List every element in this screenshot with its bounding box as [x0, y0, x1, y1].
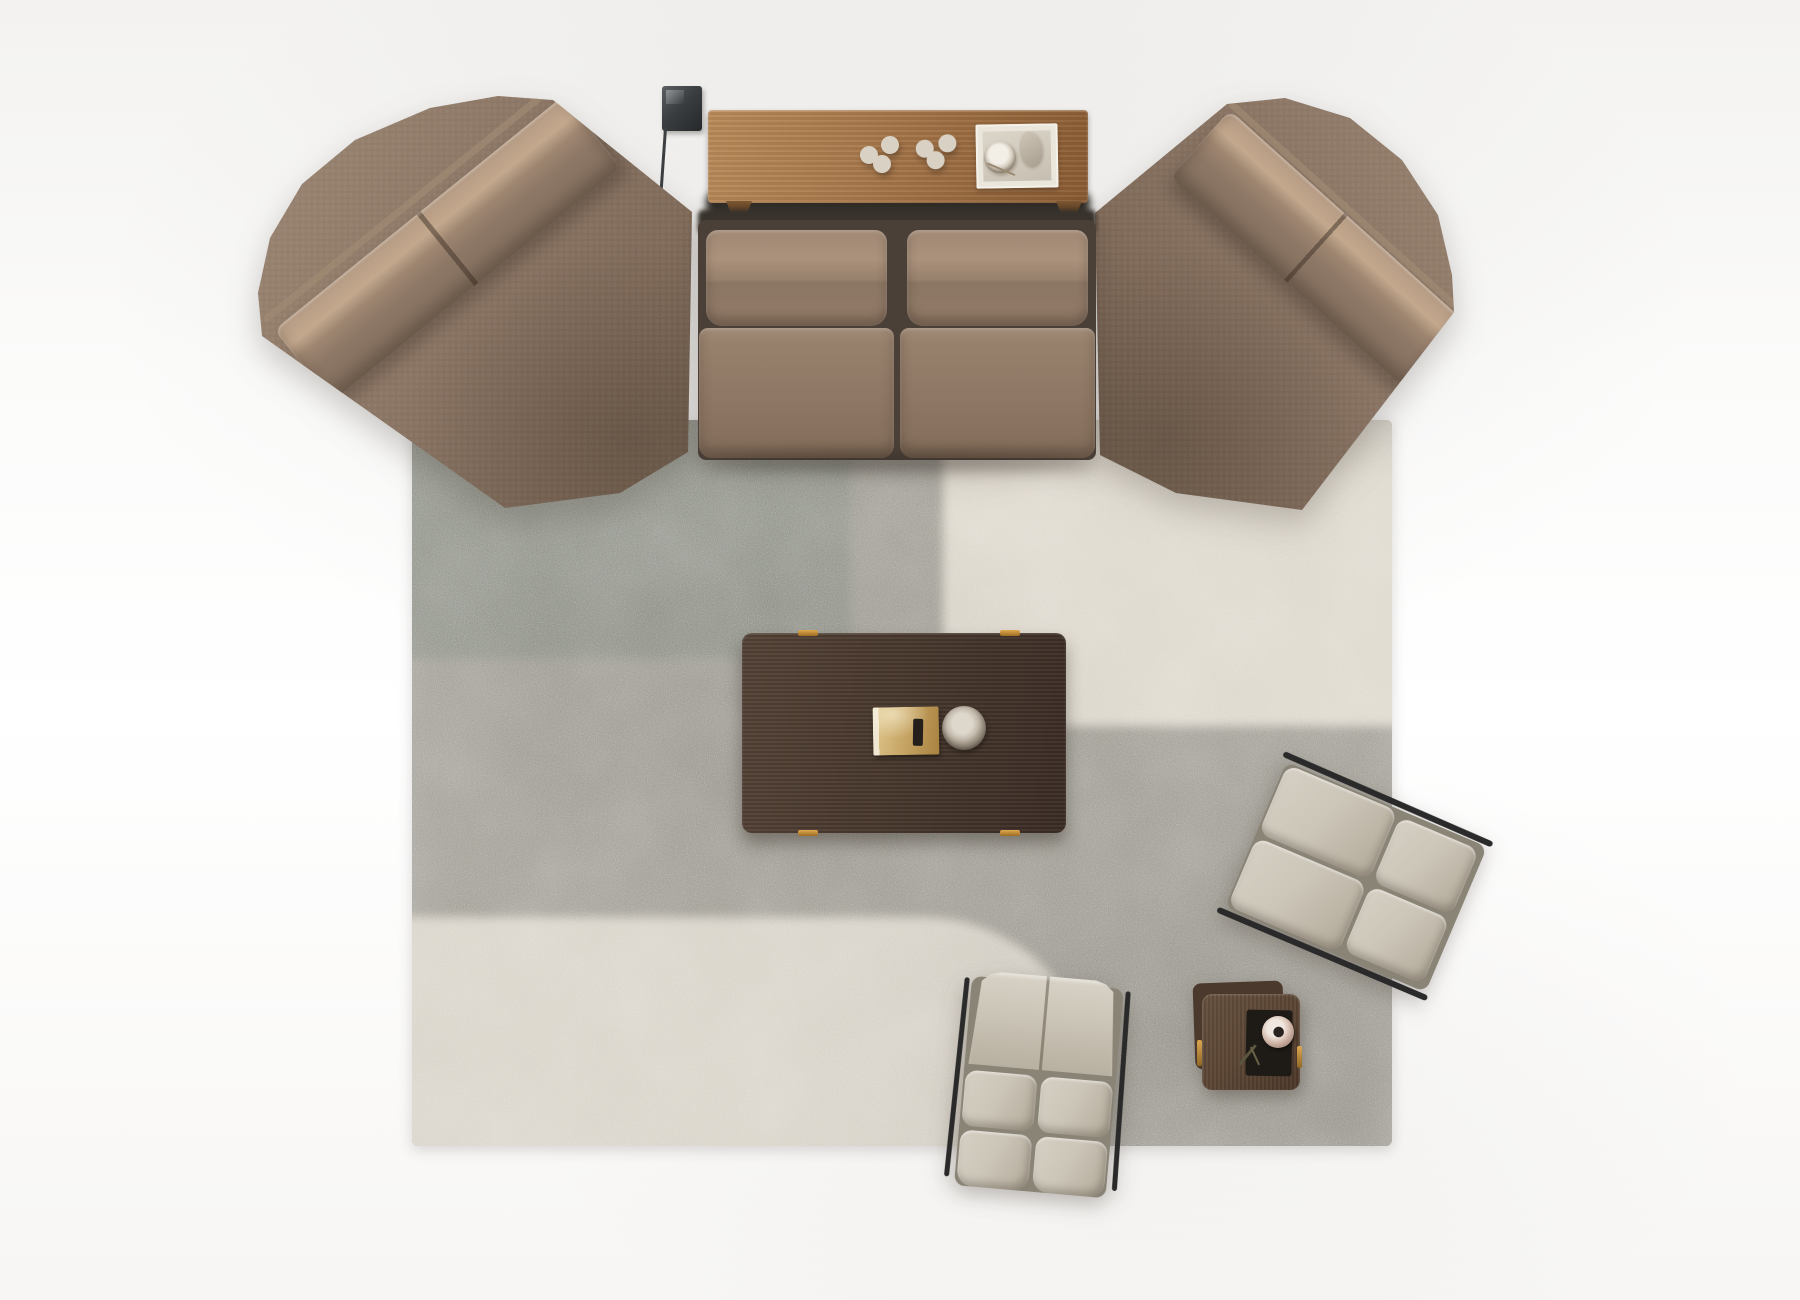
sofa-center-floor-shadow: [704, 456, 1090, 470]
decor-book: [873, 706, 940, 755]
brass-hinge: [798, 830, 818, 836]
stage: [0, 0, 1800, 1300]
chair-cushion: [956, 1129, 1033, 1191]
decor-tray: [975, 123, 1058, 188]
chair-backrest: [968, 970, 1120, 1078]
chair-cushion: [1032, 1136, 1109, 1198]
brass-handle: [1197, 1040, 1202, 1066]
headrest-cushion: [907, 230, 1088, 326]
lamp-head-plate: [662, 86, 702, 131]
lounge-chair-bottom: [954, 970, 1124, 1200]
book-cover-figure: [913, 719, 923, 746]
knot-ring: [878, 133, 901, 156]
brass-hinge: [1000, 830, 1020, 836]
decor-bowl: [942, 706, 986, 750]
headrest-cushion: [706, 230, 887, 326]
sofa-center: [694, 210, 1100, 460]
vase: [1262, 1016, 1294, 1048]
sofa-center-seat-left: [698, 224, 895, 460]
console-table: [708, 110, 1088, 203]
knot-ring: [873, 155, 891, 173]
seat-cushion: [699, 328, 894, 458]
decor-knot-sculpture-1: [858, 132, 912, 182]
sofa-center-seat-right: [899, 224, 1096, 460]
lamp-glint: [666, 90, 684, 104]
decor-knot-sculpture-2: [908, 124, 971, 184]
chair-cushion: [961, 1070, 1038, 1132]
brass-hinge: [1000, 630, 1020, 636]
coffee-table: [742, 633, 1066, 833]
seat-cushion: [900, 328, 1095, 458]
brass-hinge: [798, 630, 818, 636]
brass-handle: [1297, 1046, 1302, 1068]
side-table: [1188, 980, 1308, 1098]
chair-cushion: [1037, 1076, 1114, 1138]
